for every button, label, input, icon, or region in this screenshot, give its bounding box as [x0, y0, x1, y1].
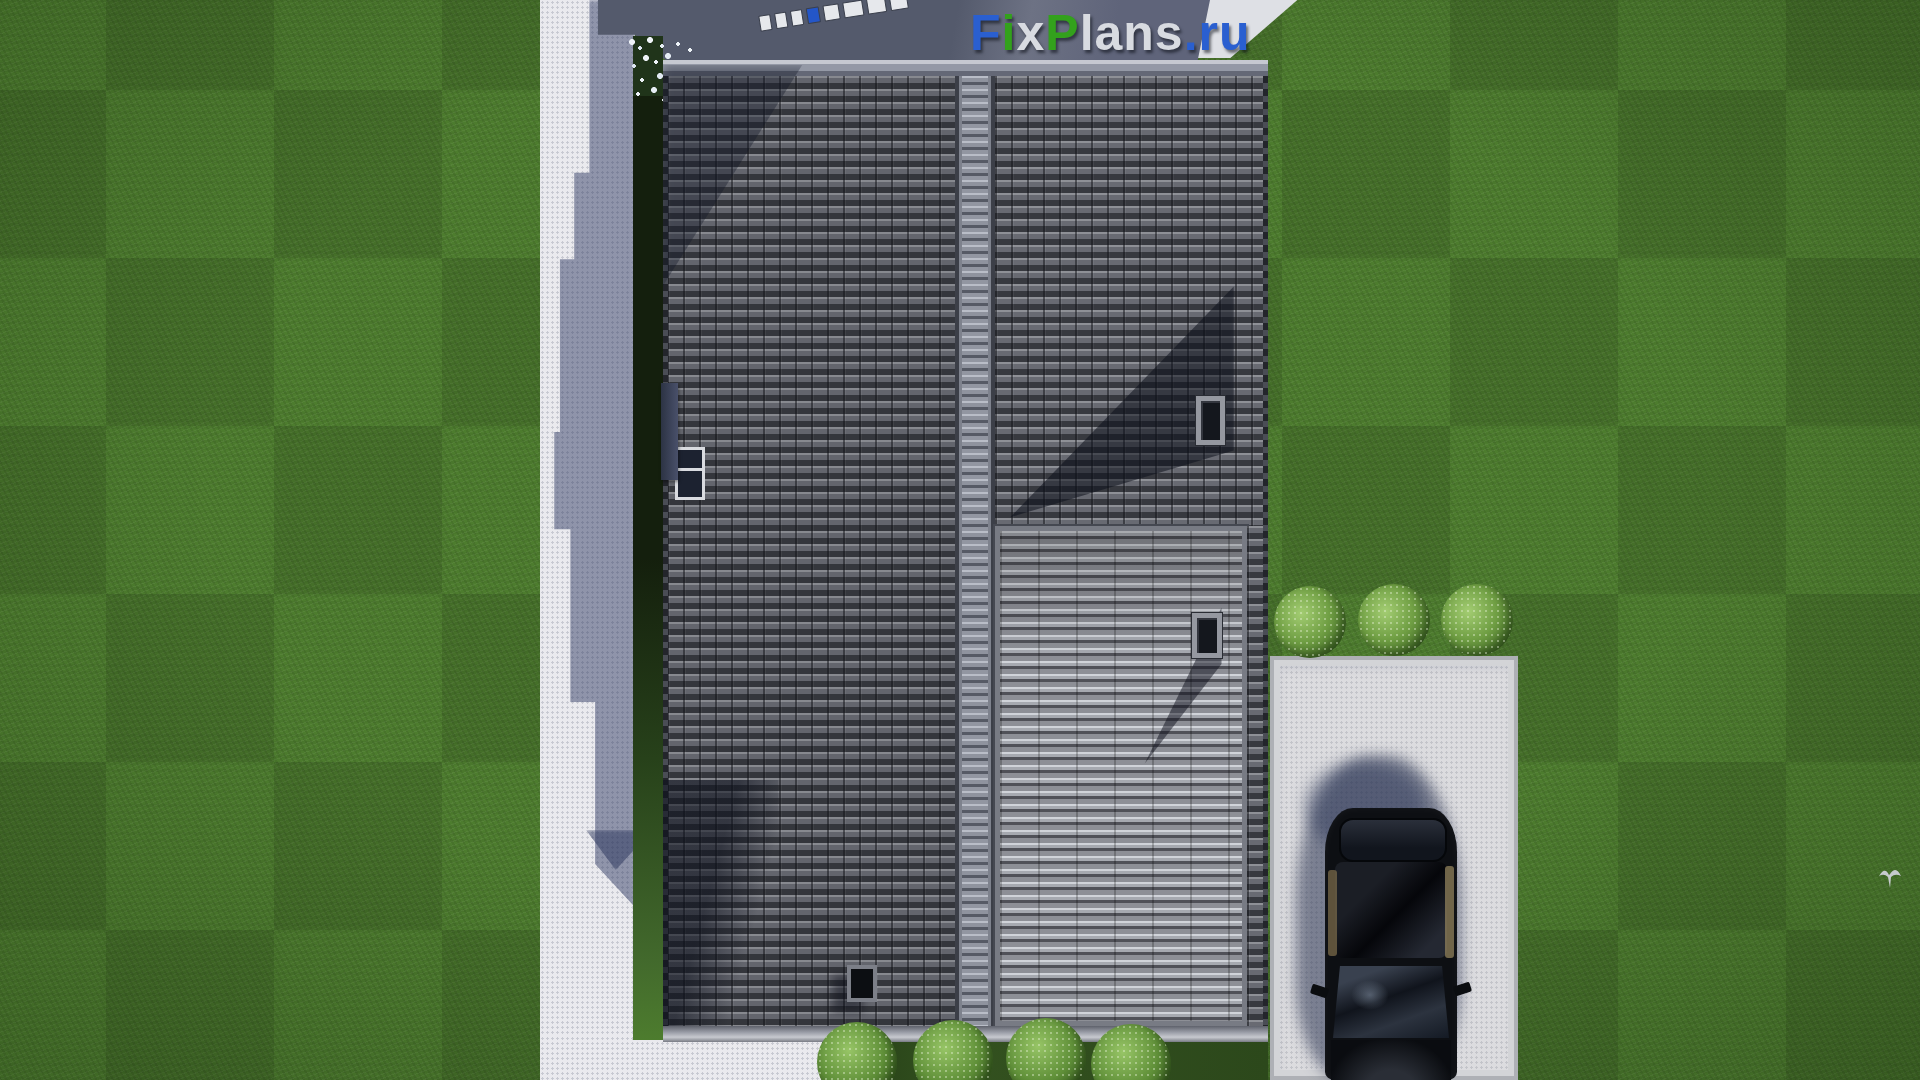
- lounger-tile: [842, 0, 864, 18]
- lounger-tile-blue: [805, 6, 821, 24]
- logo-part: x: [1016, 5, 1045, 61]
- skylight-window: [675, 447, 705, 500]
- car-windshield: [1333, 966, 1449, 1038]
- chimney-upper: [1196, 396, 1225, 445]
- round-bush-1: [1274, 586, 1346, 658]
- lounger-tile: [889, 0, 909, 11]
- logo-part: .: [1184, 5, 1199, 61]
- roof-ridge-cap: [955, 76, 995, 1026]
- chimney-lower: [1192, 613, 1222, 658]
- lounger-tile: [758, 14, 772, 32]
- lounger-tile: [774, 12, 788, 30]
- house-roof: [663, 60, 1268, 1042]
- corner-shade-on-roof: [663, 780, 778, 1026]
- logo-part: F: [970, 5, 1002, 61]
- lounger-tile: [822, 3, 841, 21]
- logo-part: P: [1045, 5, 1079, 61]
- patio: [540, 1036, 825, 1080]
- round-bush-2: [1358, 584, 1430, 656]
- render-canvas: FixPlans.ru: [0, 0, 1920, 1080]
- sun-lounger-row: [758, 0, 911, 50]
- car-interior-left: [1328, 870, 1337, 956]
- lounger-tile: [866, 0, 888, 15]
- car: [1325, 808, 1457, 1080]
- corrugated-metal-roof-section: [995, 526, 1247, 1026]
- roof-right-eave: [1263, 76, 1268, 1026]
- logo-part: ru: [1199, 5, 1251, 61]
- roof-vent: [847, 965, 877, 1002]
- bird-icon: [1876, 864, 1904, 890]
- car-roof-panel: [1335, 862, 1447, 958]
- round-bush-3: [1441, 584, 1513, 656]
- logo-part: i: [1002, 5, 1017, 61]
- side-dormer-box: [661, 383, 678, 480]
- car-interior-right: [1445, 866, 1454, 958]
- side-garden-strip: [633, 36, 663, 1040]
- watermark-logo: FixPlans.ru: [970, 4, 1251, 62]
- car-rear-window: [1339, 818, 1447, 862]
- lounger-tile: [790, 9, 804, 27]
- car-hood: [1331, 1040, 1451, 1080]
- logo-part: lans: [1080, 5, 1184, 61]
